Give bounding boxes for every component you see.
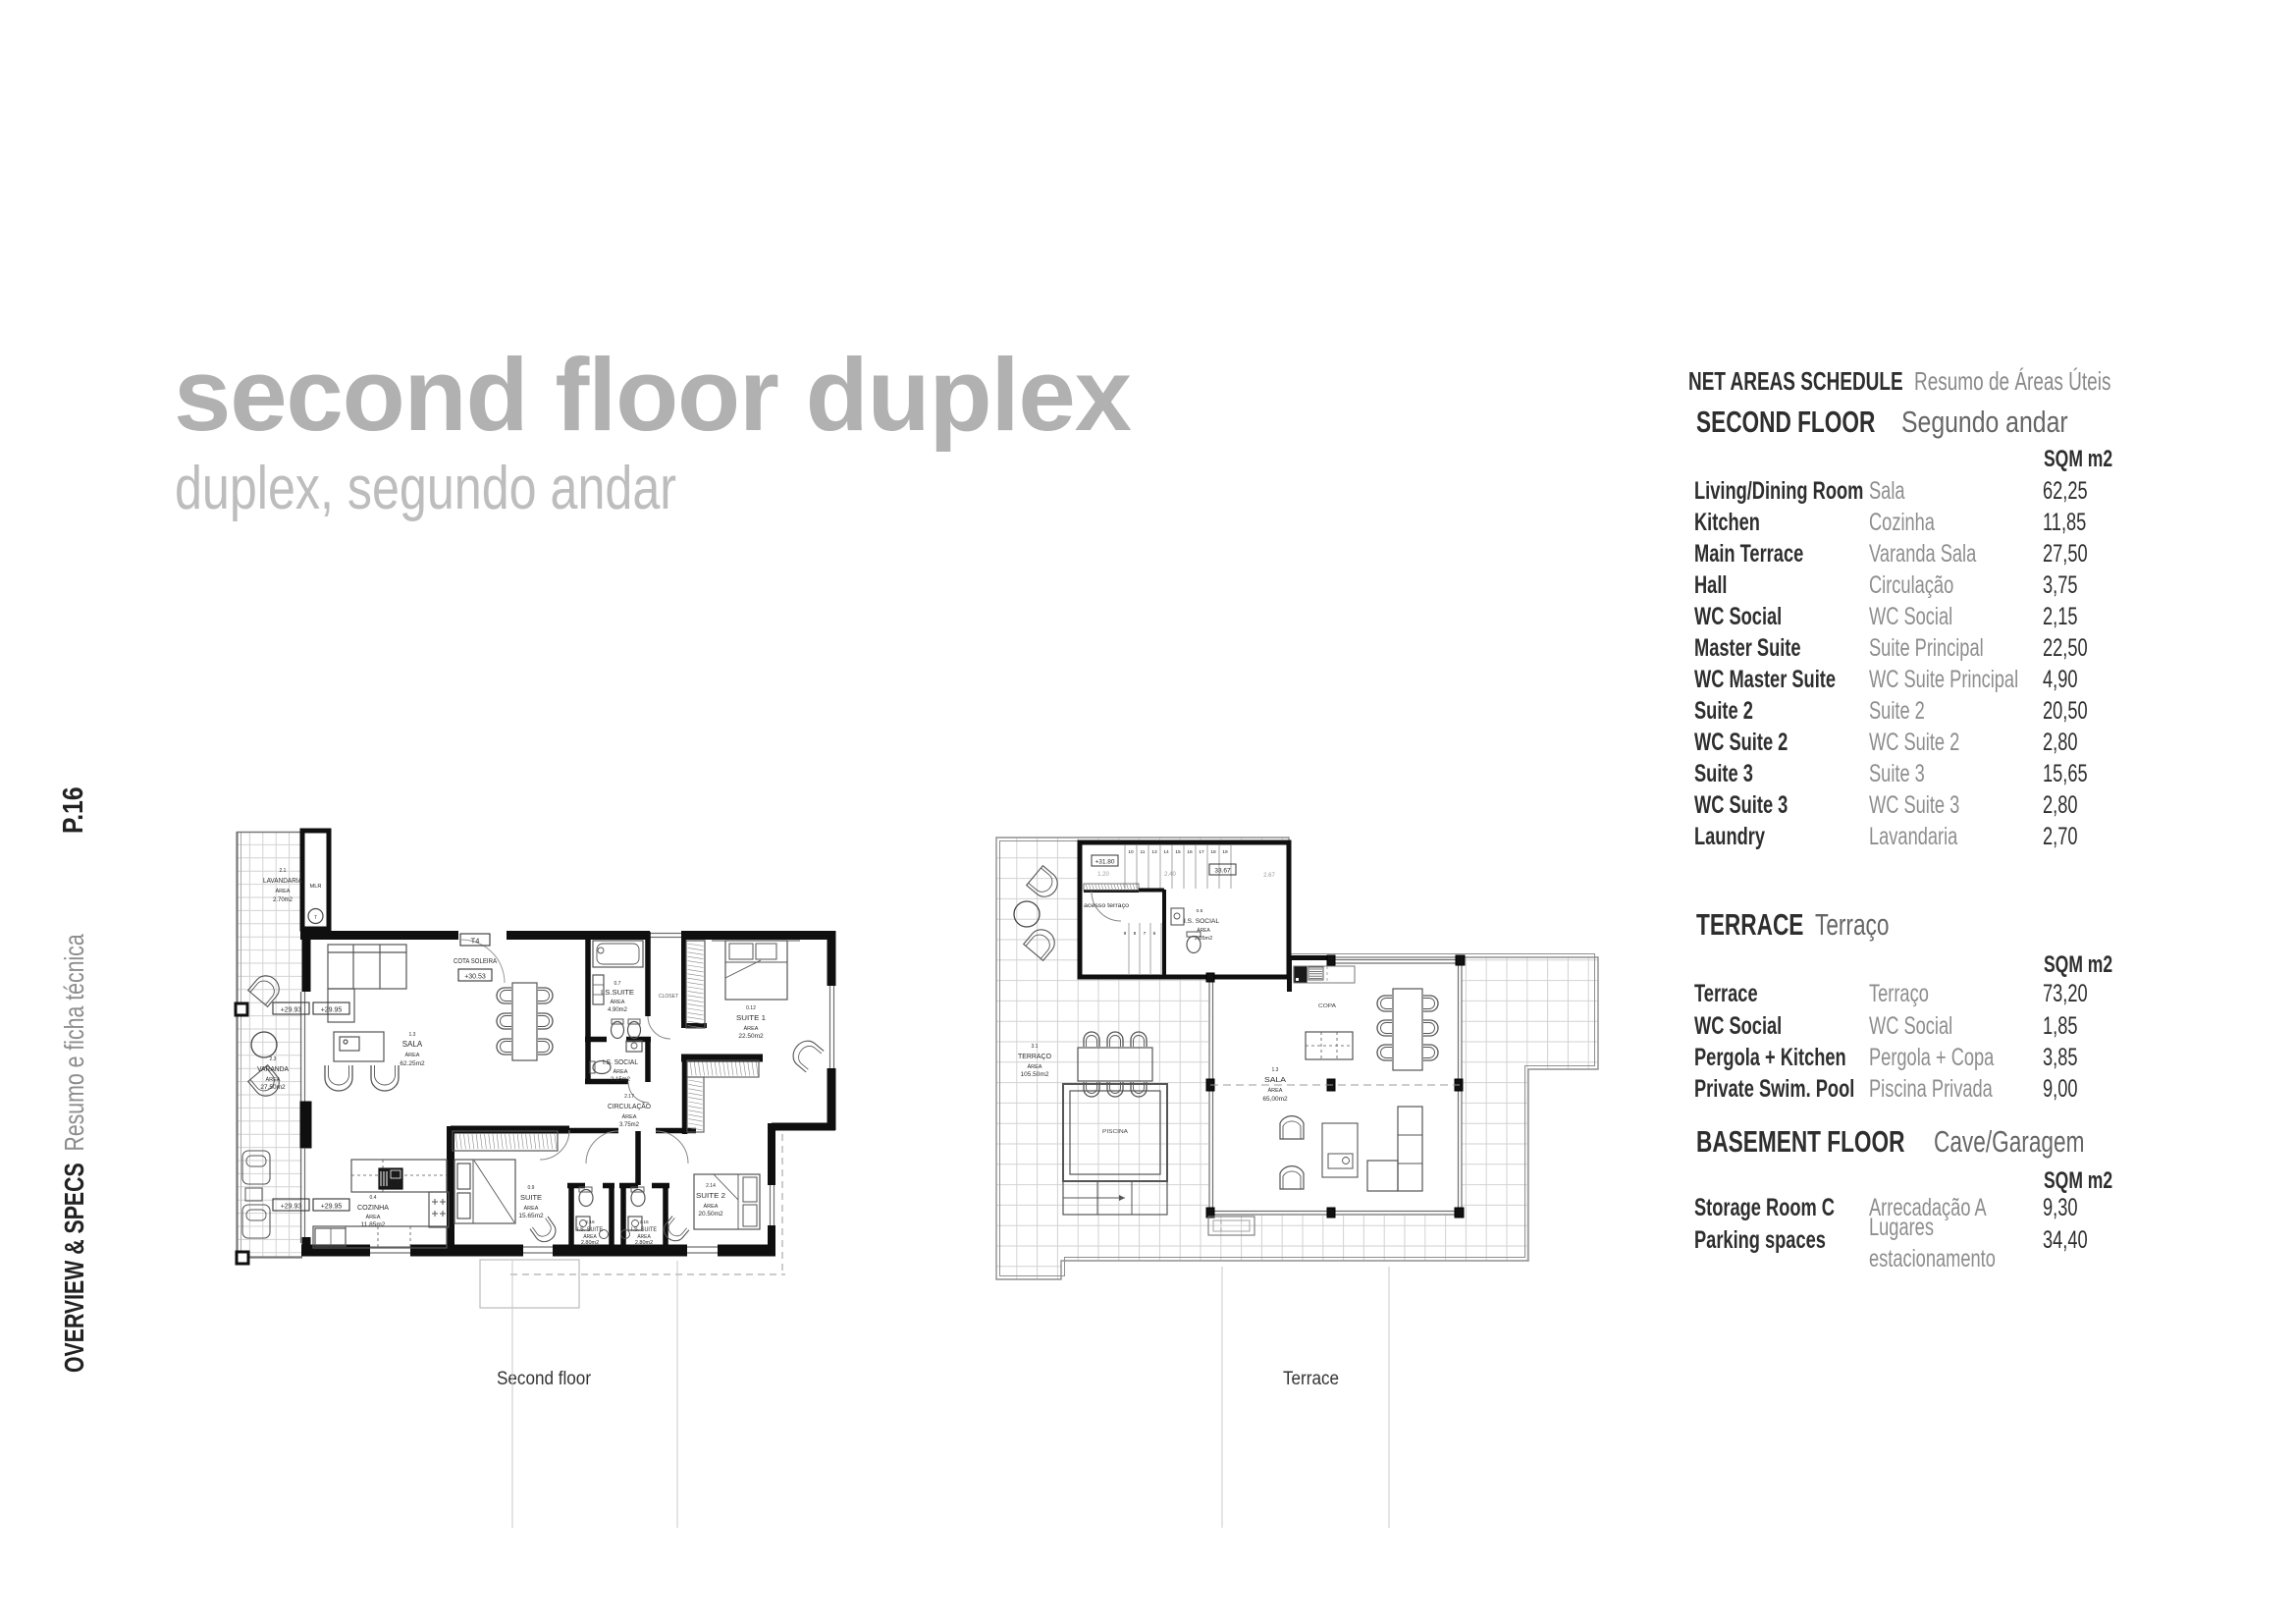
svg-text:CIRCULAÇÃO: CIRCULAÇÃO [608, 1102, 652, 1110]
svg-text:I.S. SUITE: I.S. SUITE [631, 1227, 657, 1233]
svg-text:15: 15 [1175, 849, 1181, 855]
svg-text:1.20: 1.20 [1097, 872, 1109, 878]
svg-text:ÁREA: ÁREA [622, 1113, 637, 1120]
svg-text:11.85m2: 11.85m2 [361, 1221, 386, 1228]
svg-text:COPA: COPA [1318, 1003, 1336, 1009]
svg-text:I.S. SUITE: I.S. SUITE [577, 1227, 603, 1233]
svg-text:+31.80: +31.80 [1095, 859, 1114, 866]
svg-text:2.14: 2.14 [706, 1183, 716, 1189]
svg-text:17: 17 [1199, 849, 1204, 855]
svg-text:10: 10 [1128, 849, 1134, 855]
svg-text:VARANDA: VARANDA [257, 1066, 289, 1073]
svg-text:0.12: 0.12 [746, 1005, 756, 1011]
svg-text:62.25m2: 62.25m2 [400, 1060, 425, 1067]
svg-text:COTA SOLEIRA: COTA SOLEIRA [454, 958, 497, 965]
svg-text:T4: T4 [471, 937, 480, 946]
svg-text:22.50m2: 22.50m2 [738, 1033, 764, 1040]
svg-text:SUITE: SUITE [520, 1193, 542, 1202]
svg-text:2.70m2: 2.70m2 [273, 897, 294, 903]
svg-text:SALA: SALA [402, 1040, 423, 1049]
svg-text:0.7: 0.7 [614, 981, 621, 987]
svg-text:65,00m2: 65,00m2 [1262, 1096, 1288, 1103]
svg-text:ÁREA: ÁREA [1268, 1087, 1283, 1094]
svg-text:0.4: 0.4 [370, 1195, 377, 1201]
svg-text:2.80m2: 2.80m2 [635, 1240, 653, 1246]
svg-text:I.S. SOCIAL: I.S. SOCIAL [1184, 918, 1219, 925]
svg-text:SUITE 2: SUITE 2 [696, 1191, 725, 1200]
svg-text:MLR: MLR [310, 884, 322, 890]
svg-text:2.3: 2.3 [270, 1056, 277, 1062]
svg-text:ÁREA: ÁREA [276, 888, 291, 894]
svg-text:16: 16 [1187, 849, 1193, 855]
svg-text:ÁREA: ÁREA [704, 1203, 719, 1210]
svg-text:0.5: 0.5 [1197, 908, 1203, 914]
svg-text:2.67: 2.67 [1263, 873, 1275, 879]
svg-text:2.16: 2.16 [585, 1219, 595, 1225]
svg-text:11: 11 [1141, 849, 1146, 855]
svg-text:ÁREA: ÁREA [366, 1214, 381, 1220]
svg-text:2.1: 2.1 [280, 868, 287, 874]
svg-text:+29.93: +29.93 [281, 1204, 302, 1211]
svg-text:2.05m2: 2.05m2 [1195, 936, 1212, 942]
svg-text:2.80m2: 2.80m2 [581, 1240, 599, 1246]
svg-text:33.67: 33.67 [1214, 868, 1231, 875]
svg-text:19: 19 [1222, 849, 1228, 855]
svg-text:0.9: 0.9 [528, 1185, 535, 1191]
svg-text:13: 13 [1151, 849, 1157, 855]
svg-text:+30.53: +30.53 [464, 974, 486, 981]
svg-text:ÁREA: ÁREA [611, 999, 625, 1005]
svg-text:3.1: 3.1 [1032, 1044, 1039, 1050]
svg-text:ÁREA: ÁREA [266, 1076, 281, 1083]
svg-text:CLOSET: CLOSET [659, 994, 679, 1000]
svg-text:LAVANDARIA: LAVANDARIA [263, 878, 302, 885]
svg-text:9: 9 [1124, 931, 1127, 937]
svg-text:ÁREA: ÁREA [614, 1068, 628, 1075]
svg-text:acesso terraço: acesso terraço [1084, 902, 1129, 909]
svg-text:4.90m2: 4.90m2 [608, 1007, 628, 1013]
svg-text:ÁREA: ÁREA [637, 1233, 651, 1240]
svg-text:2.15: 2.15 [639, 1219, 649, 1225]
svg-text:PISCINA: PISCINA [1102, 1129, 1128, 1135]
svg-text:3.75m2: 3.75m2 [619, 1122, 640, 1128]
svg-text:SALA: SALA [1264, 1075, 1286, 1084]
svg-text:18: 18 [1210, 849, 1216, 855]
svg-text:15.65m2: 15.65m2 [518, 1213, 544, 1219]
svg-text:2.40: 2.40 [1164, 872, 1176, 878]
svg-text:6: 6 [1153, 931, 1156, 937]
svg-text:ÁREA: ÁREA [524, 1205, 539, 1212]
svg-text:27.50m2: 27.50m2 [260, 1084, 286, 1091]
svg-text:14: 14 [1163, 849, 1169, 855]
svg-text:8: 8 [1134, 931, 1137, 937]
svg-text:COZINHA: COZINHA [357, 1205, 389, 1212]
svg-text:I.S. SOCIAL: I.S. SOCIAL [603, 1059, 638, 1066]
svg-text:2.17: 2.17 [624, 1094, 634, 1100]
svg-text:TERRAÇO: TERRAÇO [1018, 1054, 1052, 1060]
svg-text:ÁREA: ÁREA [1197, 927, 1210, 934]
svg-text:1.3: 1.3 [409, 1032, 416, 1038]
svg-text:ÁREA: ÁREA [583, 1233, 597, 1240]
svg-text:20.50m2: 20.50m2 [698, 1211, 723, 1218]
svg-text:105.50m2: 105.50m2 [1021, 1071, 1049, 1078]
svg-text:T: T [314, 915, 317, 921]
svg-text:7: 7 [1144, 931, 1147, 937]
svg-text:ÁREA: ÁREA [405, 1052, 420, 1058]
svg-text:SUITE 1: SUITE 1 [736, 1013, 766, 1022]
svg-text:ÁREA: ÁREA [1028, 1063, 1042, 1070]
svg-text:I.S.SUITE: I.S.SUITE [601, 990, 634, 997]
svg-text:1.3: 1.3 [1272, 1067, 1279, 1073]
svg-text:+29.93: +29.93 [281, 1007, 302, 1014]
svg-text:2.15m2: 2.15m2 [611, 1077, 631, 1083]
svg-text:ÁREA: ÁREA [744, 1025, 759, 1032]
svg-text:+29.95: +29.95 [321, 1007, 343, 1014]
svg-text:+29.95: +29.95 [321, 1204, 343, 1211]
